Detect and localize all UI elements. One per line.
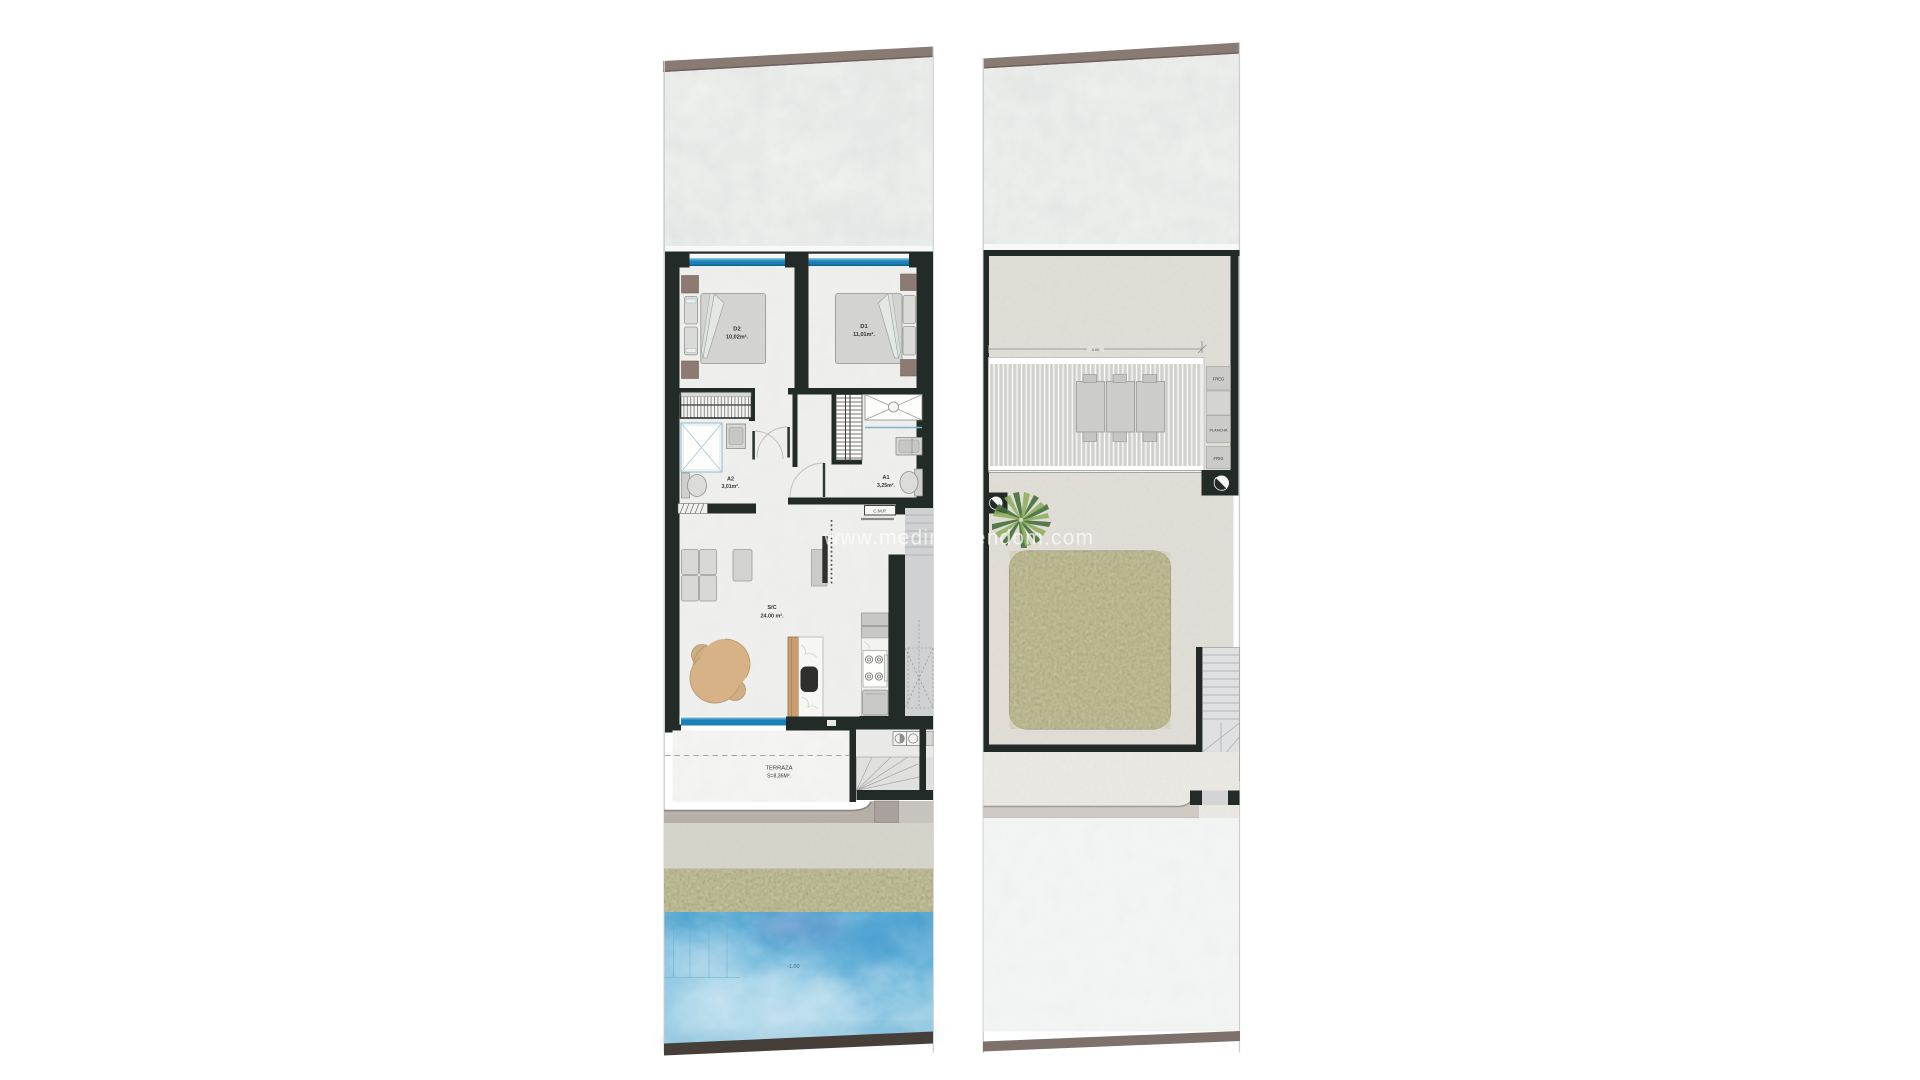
svg-text:3,25m².: 3,25m². xyxy=(877,483,895,489)
svg-text:11,01m².: 11,01m². xyxy=(853,331,875,338)
svg-text:www.medinaeiendom.com: www.medinaeiendom.com xyxy=(823,527,1094,550)
svg-text:A2: A2 xyxy=(727,477,734,483)
svg-text:S=8,36M².: S=8,36M². xyxy=(767,774,791,780)
svg-text:FRIG: FRIG xyxy=(1213,456,1223,461)
svg-text:D2: D2 xyxy=(733,327,740,333)
svg-text:D1: D1 xyxy=(860,324,868,330)
svg-text:PLANCHA: PLANCHA xyxy=(1210,429,1228,433)
svg-text:10,02m².: 10,02m². xyxy=(726,334,748,341)
svg-text:4.00: 4.00 xyxy=(1092,347,1101,352)
svg-text:A1: A1 xyxy=(882,475,889,481)
svg-text:3,01m².: 3,01m². xyxy=(722,484,740,490)
svg-text:FREG: FREG xyxy=(1213,377,1225,382)
svg-text:24.00 m².: 24.00 m². xyxy=(760,614,784,620)
svg-text:S/C: S/C xyxy=(767,605,776,611)
svg-text:C.M.P.: C.M.P. xyxy=(873,509,886,514)
svg-text:-1.00: -1.00 xyxy=(787,964,800,970)
svg-text:TERRAZA: TERRAZA xyxy=(765,766,792,772)
